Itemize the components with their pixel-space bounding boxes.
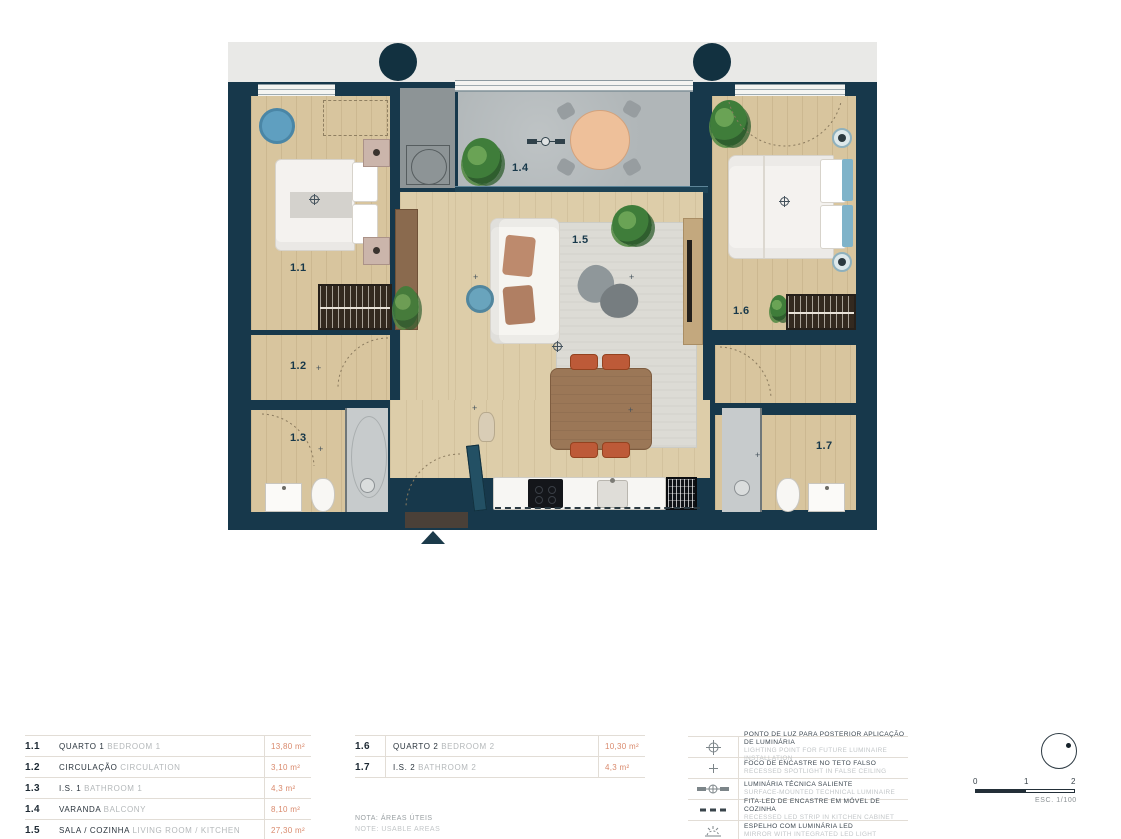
legend-row: LUMINÁRIA TÉCNICA SALIENTE SURFACE-MOUNT… — [688, 779, 908, 800]
spotlight-icon: + — [755, 452, 760, 458]
legend-row: PONTO DE LUZ PARA POSTERIOR APLICAÇÃO DE… — [688, 737, 908, 758]
scale-label: ESC. 1/100 — [1035, 797, 1077, 804]
wardrobe-niche-dashed — [323, 100, 388, 136]
spotlight-icon: + — [318, 446, 323, 452]
nightstand — [363, 237, 390, 265]
vase — [478, 412, 495, 442]
room-code: 1.1 — [25, 741, 59, 752]
page: + + + + + + + 1.1 1.2 1.3 1.4 1.5 1.6 1.… — [0, 0, 1121, 839]
dining-chair — [602, 442, 630, 458]
room-label-1-3: 1.3 — [290, 432, 307, 444]
north-indicator — [1041, 733, 1077, 769]
room-label-1-2: 1.2 — [290, 360, 307, 372]
table-row: 1.4 VARANDA BALCONY 8,10 m² — [25, 799, 311, 820]
spotlight-icon: + — [628, 407, 633, 413]
note-pt: NOTA: ÁREAS ÚTEIS — [355, 815, 433, 822]
bed-1 — [275, 159, 355, 251]
wardrobe-2 — [786, 294, 856, 330]
column-icon — [693, 43, 731, 81]
kitchen-counter — [493, 477, 666, 510]
wardrobe-1 — [318, 284, 392, 330]
flowers — [393, 286, 419, 328]
light-point-icon — [688, 740, 738, 755]
shower-head-icon — [360, 478, 375, 493]
dining-chair — [570, 442, 598, 458]
dining-table — [550, 368, 652, 450]
recessed-spotlight-icon — [688, 764, 738, 773]
table-row: 1.1 QUARTO 1 BEDROOM 1 13,80 m² — [25, 736, 311, 757]
room-label-1-6: 1.6 — [733, 305, 750, 317]
table-row: 1.5 SALA / COZINHA LIVING ROOM / KITCHEN… — [25, 820, 311, 839]
cooktop — [528, 479, 563, 508]
led-strip-line — [495, 507, 700, 509]
floor-plan: + + + + + + + 1.1 1.2 1.3 1.4 1.5 1.6 1.… — [228, 42, 877, 530]
bathroom1-shower — [345, 408, 388, 512]
shower-head-icon — [734, 480, 750, 496]
room-name: QUARTO 1 BEDROOM 1 — [59, 742, 161, 751]
area-table-right: 1.6 QUARTO 2 BEDROOM 2 10,30 m² 1.7 I.S.… — [355, 735, 645, 778]
spotlight-icon: + — [629, 274, 634, 280]
balcony-table — [570, 110, 630, 170]
tv — [687, 240, 692, 322]
room-label-1-7: 1.7 — [816, 440, 833, 452]
balcony-railing — [455, 80, 693, 92]
spotlight-icon: + — [473, 274, 478, 280]
kitchen-sink — [597, 480, 628, 508]
scale-bar — [975, 789, 1075, 793]
door-arc — [260, 412, 316, 468]
room-label-1-5: 1.5 — [572, 234, 589, 246]
note-en: NOTE: USABLE AREAS — [355, 826, 440, 833]
door-arc — [336, 336, 390, 390]
lighting-legend: PONTO DE LUZ PARA POSTERIOR APLICAÇÃO DE… — [688, 736, 908, 839]
sofa-cushion — [502, 285, 535, 325]
bed-2-pillow-blue — [842, 159, 853, 201]
spotlight-icon: + — [472, 405, 477, 411]
plant — [612, 205, 652, 245]
scale-tick-1: 1 — [1024, 777, 1028, 786]
legend-pt: PONTO DE LUZ PARA POSTERIOR APLICAÇÃO DE… — [744, 731, 908, 747]
spotlight-icon: + — [316, 365, 321, 371]
armchair-blue — [259, 108, 295, 144]
bedside-stool — [832, 252, 852, 272]
plant — [462, 138, 502, 184]
curtain-arc — [725, 98, 845, 150]
dining-chair — [602, 354, 630, 370]
sink — [265, 483, 302, 512]
led-strip-icon — [688, 808, 738, 812]
legend-row: FITA-LED DE ENCASTRE EM MÓVEL DE COZINHA… — [688, 800, 908, 821]
mirror-led-icon — [688, 825, 738, 837]
room-area: 13,80 m² — [271, 742, 305, 751]
light-point-icon — [553, 342, 562, 351]
toilet — [776, 478, 800, 512]
technical-area — [400, 88, 455, 188]
north-dot — [1066, 743, 1071, 748]
nightstand — [363, 139, 390, 167]
armchair-blue — [466, 285, 494, 313]
legend-row: FOCO DE ENCASTRE NO TETO FALSO RECESSED … — [688, 758, 908, 779]
equipment-outline — [406, 145, 450, 185]
door-arc — [718, 345, 773, 400]
table-row: 1.7 I.S. 2 BATHROOM 2 4,3 m² — [355, 757, 645, 778]
column-icon — [379, 43, 417, 81]
legend-row: ESPELHO COM LUMINÁRIA LED MIRROR WITH IN… — [688, 821, 908, 839]
light-point-icon — [780, 197, 789, 206]
dining-chair — [570, 354, 598, 370]
entry-mat — [405, 512, 468, 528]
dish-rack — [666, 477, 697, 510]
exterior-strip — [228, 42, 877, 82]
scale-tick-2: 2 — [1071, 777, 1075, 786]
technical-luminaire-icon — [688, 784, 738, 794]
bed-2-pillow-blue — [842, 205, 853, 247]
table-row: 1.2 CIRCULAÇÃO CIRCULATION 3,10 m² — [25, 757, 311, 778]
bathroom2-shower — [722, 408, 762, 512]
room-label-1-1: 1.1 — [290, 262, 307, 274]
entrance-arrow-icon — [421, 531, 445, 544]
scale-tick-0: 0 — [973, 777, 977, 786]
bed-2 — [728, 155, 834, 259]
room-label-1-4: 1.4 — [512, 162, 529, 174]
table-row: 1.3 I.S. 1 BATHROOM 1 4,3 m² — [25, 778, 311, 799]
area-table-left: 1.1 QUARTO 1 BEDROOM 1 13,80 m² 1.2 CIRC… — [25, 735, 311, 839]
toilet — [311, 478, 335, 512]
bed-1-pillows — [352, 162, 378, 202]
door-arc — [404, 452, 462, 510]
technical-luminaire-icon — [527, 137, 565, 146]
tv-console — [683, 218, 703, 345]
sink — [808, 483, 845, 512]
table-row: 1.6 QUARTO 2 BEDROOM 2 10,30 m² — [355, 736, 645, 757]
light-point-icon — [310, 195, 319, 204]
sofa-cushion — [502, 235, 536, 278]
